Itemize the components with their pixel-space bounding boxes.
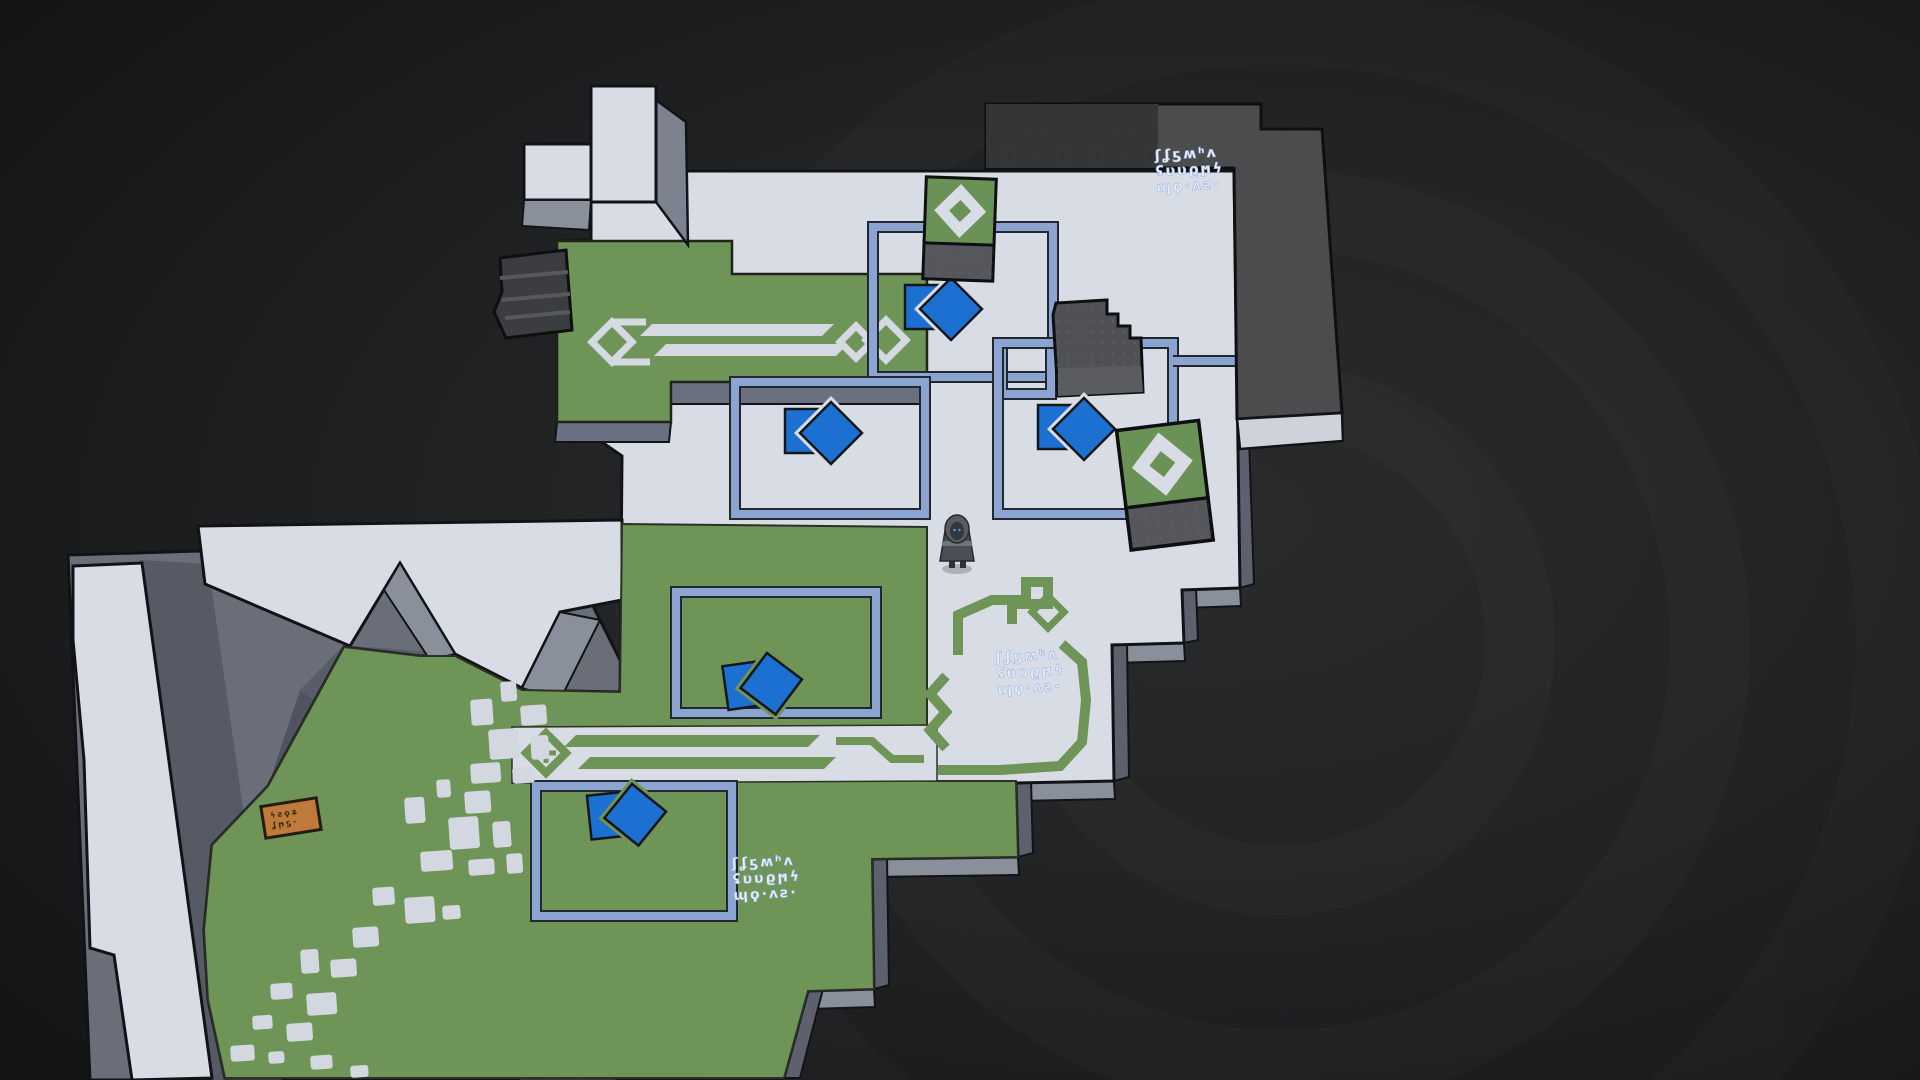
stone-tile [464,790,491,814]
stone-tile [442,905,461,920]
rune-cube-top[interactable] [923,177,997,281]
character-face [950,522,964,540]
inscription-knot: ʃʆƽʍʰʌʢυυϱϻϟɰϙ·ʌƨ· [994,646,1066,698]
floor-band [512,725,937,783]
stone-tile [530,735,550,760]
stone-tile [270,982,293,999]
stone-tile [506,853,523,874]
ruin-rock-west [494,250,572,338]
stone-tile [468,858,495,876]
stone-tile [350,1065,369,1078]
stone-tile [448,816,480,850]
stone-tile [404,797,426,824]
stone-tile [300,949,320,974]
stone-tile [500,681,517,702]
inscription-grass: ʃʆƽʍʰʌʢυυϱϻϟɰϙ·ʌƨ· [730,852,802,904]
stone-tile [352,926,379,948]
glyph-line: ɰϙ·ʌƨ· [1156,177,1221,196]
stone-tile [306,992,337,1016]
stone-tile [470,762,501,784]
stone-tile [286,1022,313,1042]
stone-tile [230,1044,255,1062]
level-scene: ʃʆƽʍʰʌʢυυϱϻϟɰϙ·ʌƨ·ʃʆƽʍʰʌʢυυϱϻϟɰϙ·ʌƨ·ʃʆƽʍ… [0,0,1920,1080]
stone-tile [520,704,547,726]
stone-tile [488,728,520,760]
stone-tile [252,1015,273,1030]
game-viewport: ʃʆƽʍʰʌʢυυϱϻϟɰϙ·ʌƨ·ʃʆƽʍʰʌʢυυϱϻϟɰϙ·ʌƨ·ʃʆƽʍ… [0,0,1920,1080]
stone-tile [310,1054,333,1070]
stone-tile [492,821,512,848]
glyph-line: ɰϙ·ʌƨ· [997,679,1062,698]
stone-tile [268,1051,285,1064]
stone-tile [470,698,494,725]
wooden-sign[interactable]: ϟƨϙʑʆϻƽ· [261,798,321,838]
stone-tile [420,850,453,872]
rune-cube-right[interactable] [1117,420,1214,550]
stone-tile [404,896,436,924]
stone-tile [512,766,535,783]
stone-tile [330,958,357,978]
stone-tile [372,886,395,905]
glyph-line: ɰϙ·ʌƨ· [733,885,798,904]
inscription-dark-platform: ʃʆƽʍʰʌʢυυϱϻϟɰϙ·ʌƨ· [1153,144,1225,196]
character-shadow [942,564,972,574]
stone-tile [436,779,451,798]
